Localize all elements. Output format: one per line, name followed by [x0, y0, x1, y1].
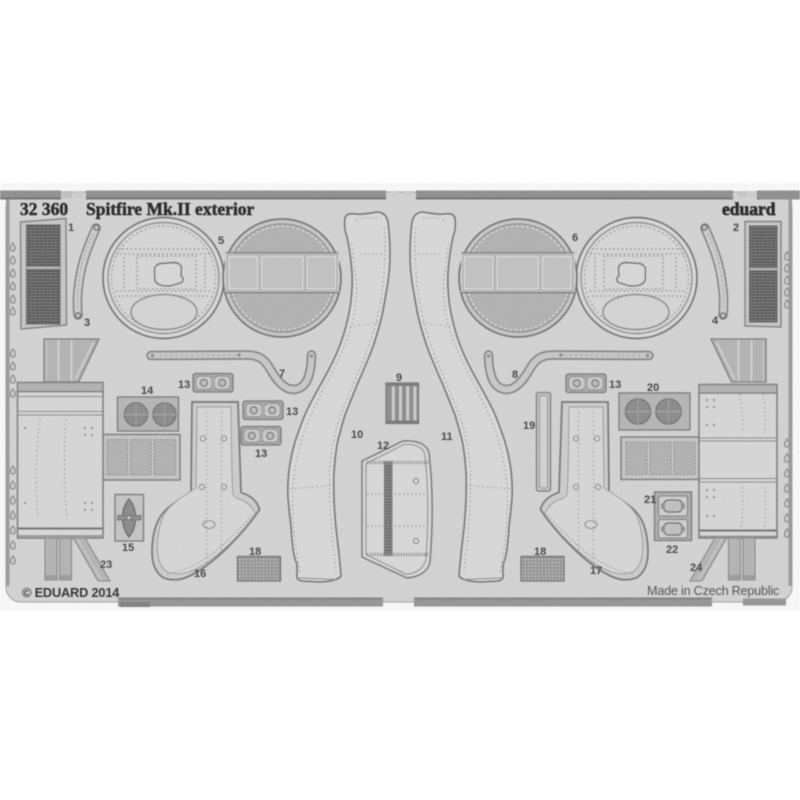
svg-text:16: 16: [194, 568, 206, 580]
svg-text:5: 5: [218, 235, 224, 247]
svg-text:2: 2: [733, 222, 739, 234]
svg-text:20: 20: [647, 382, 659, 394]
svg-text:13: 13: [609, 379, 621, 391]
svg-text:18: 18: [249, 546, 261, 558]
svg-text:Made in Czech Republic: Made in Czech Republic: [647, 584, 780, 598]
svg-text:32 360: 32 360: [20, 199, 68, 219]
svg-text:1: 1: [68, 222, 74, 234]
svg-text:8: 8: [512, 369, 518, 381]
svg-text:9: 9: [396, 372, 402, 384]
svg-text:12: 12: [377, 440, 389, 452]
svg-text:3: 3: [84, 317, 90, 329]
svg-text:eduard: eduard: [722, 199, 776, 219]
svg-text:19: 19: [523, 420, 535, 432]
svg-text:18: 18: [534, 546, 546, 558]
svg-text:23: 23: [100, 559, 112, 571]
svg-text:13: 13: [286, 406, 298, 418]
svg-text:17: 17: [590, 565, 602, 577]
svg-text:13: 13: [255, 448, 267, 460]
svg-text:11: 11: [441, 431, 453, 443]
svg-text:14: 14: [141, 385, 154, 397]
svg-text:6: 6: [572, 232, 578, 244]
svg-text:© EDUARD 2014: © EDUARD 2014: [22, 585, 120, 600]
svg-text:22: 22: [666, 544, 678, 556]
svg-text:24: 24: [690, 562, 703, 574]
svg-text:13: 13: [178, 379, 190, 391]
svg-text:15: 15: [122, 542, 134, 554]
svg-text:Spitfire Mk.II exterior: Spitfire Mk.II exterior: [86, 199, 255, 219]
svg-text:21: 21: [644, 494, 656, 506]
svg-text:10: 10: [351, 429, 363, 441]
svg-text:4: 4: [712, 315, 719, 327]
svg-text:7: 7: [279, 368, 285, 380]
